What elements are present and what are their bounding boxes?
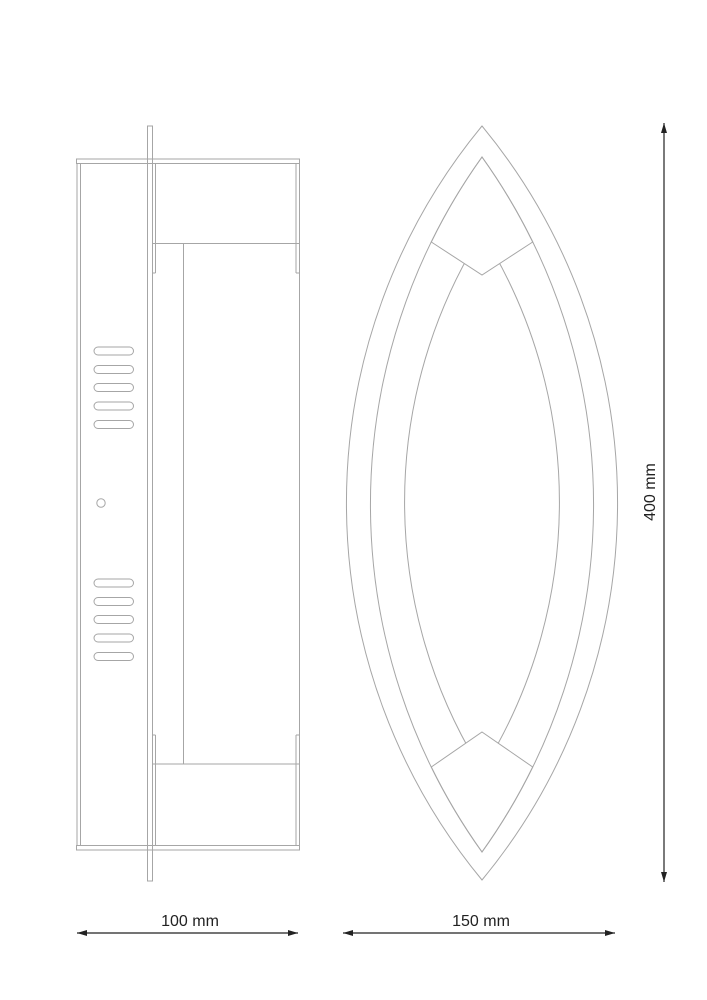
dimension-label-400mm: 400 mm: [642, 463, 659, 521]
arrowhead-left: [77, 930, 87, 936]
clip-bottom: [431, 732, 532, 852]
arrowhead-right: [288, 930, 298, 936]
vent-slot: [94, 598, 134, 606]
dimension-height: 400 mm: [642, 123, 667, 882]
vent-slot: [94, 384, 134, 392]
clip-top: [431, 157, 532, 275]
drawing-canvas: 100 mm 150 mm 400 mm: [0, 0, 707, 1000]
dimension-front-width: 150 mm: [343, 913, 615, 936]
vent-slot: [94, 402, 134, 410]
technical-drawing-page: 100 mm 150 mm 400 mm: [0, 0, 707, 1000]
arrowhead-top: [661, 123, 667, 133]
flange-top: [77, 159, 300, 164]
vent-slot: [94, 366, 134, 374]
vent-slots-upper: [94, 347, 134, 429]
arrowhead-bottom: [661, 872, 667, 882]
flange-bottom: [77, 846, 300, 851]
vent-slot: [94, 421, 134, 429]
arrowhead-right: [605, 930, 615, 936]
vent-slot: [94, 347, 134, 355]
vent-slot: [94, 616, 134, 624]
side-view: [77, 126, 300, 881]
dimension-label-150mm: 150 mm: [452, 913, 510, 930]
vent-slots-lower: [94, 579, 134, 661]
dimension-label-100mm: 100 mm: [161, 913, 219, 930]
screw-hole: [97, 499, 105, 507]
vent-slot: [94, 634, 134, 642]
dimension-side-width: 100 mm: [77, 913, 298, 936]
arrowhead-left: [343, 930, 353, 936]
wall-bracket-bar: [148, 126, 153, 881]
glass-inner-outline: [405, 233, 560, 771]
vent-slot: [94, 579, 134, 587]
vent-slot: [94, 653, 134, 661]
front-view: [346, 126, 617, 880]
